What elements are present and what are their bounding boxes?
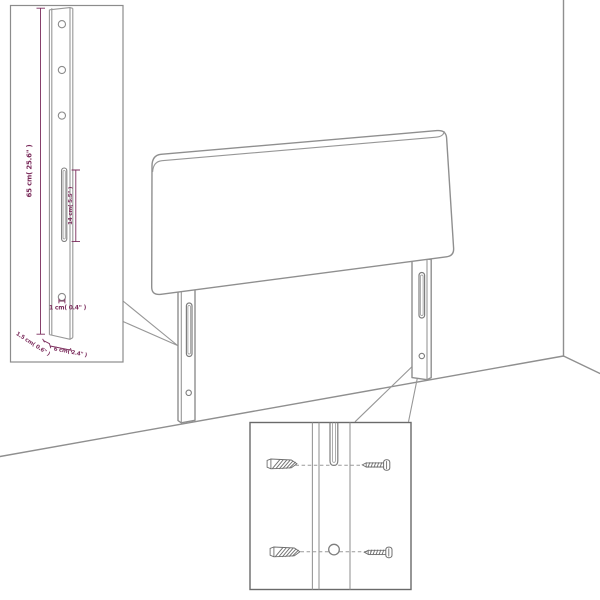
leg-hole-3 <box>58 112 65 119</box>
hardware-detail-inset <box>250 423 411 590</box>
leg-hole-1 <box>58 21 65 28</box>
scene-svg: 65 cm( 25.6" ) 14 cm( 5.5" ) 1 cm( 0.4" … <box>0 0 600 600</box>
right-leg-hole <box>419 353 424 358</box>
floor-line-right <box>564 356 600 374</box>
hole-dimension-label: 1 cm( 0.4" ) <box>49 305 87 312</box>
product-diagram-canvas: 65 cm( 25.6" ) 14 cm( 5.5" ) 1 cm( 0.4" … <box>0 0 600 600</box>
slot-dimension-label: 14 cm( 5.5" ) <box>68 186 74 225</box>
left-leg-hole <box>186 390 191 395</box>
left-leg <box>178 289 195 423</box>
headboard-panel <box>152 131 454 295</box>
leader-lines-left-inset <box>123 301 178 346</box>
height-dimension-label: 65 cm( 25.6" ) <box>26 144 34 197</box>
leg-hole-4 <box>58 293 65 300</box>
hardware-hole <box>329 544 340 555</box>
leg-detail-inset: 65 cm( 25.6" ) 14 cm( 5.5" ) 1 cm( 0.4" … <box>11 6 124 363</box>
right-leg <box>412 259 431 380</box>
leg-hole-2 <box>58 66 65 73</box>
